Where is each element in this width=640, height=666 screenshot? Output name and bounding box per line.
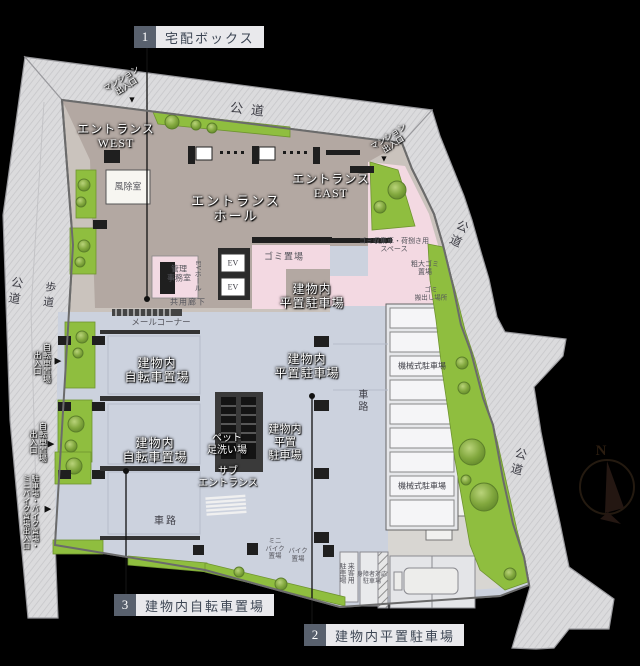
callout-delivery-box: 1 宅配ボックス bbox=[134, 26, 264, 48]
site-plan: 1 宅配ボックス 3 建物内自転車置場 2 建物内平置駐車場 マンション 出入口… bbox=[0, 0, 640, 666]
callout-bicycle-parking: 3 建物内自転車置場 bbox=[114, 594, 274, 616]
callout-3-number: 3 bbox=[114, 594, 136, 616]
callout-2-number: 2 bbox=[304, 624, 326, 646]
callout-flat-parking: 2 建物内平置駐車場 bbox=[304, 624, 464, 646]
compass-icon bbox=[580, 460, 634, 524]
callout-1-number: 1 bbox=[134, 26, 156, 48]
callout-1-label: 宅配ボックス bbox=[156, 26, 264, 48]
callout-2-label: 建物内平置駐車場 bbox=[326, 624, 464, 646]
callout-3-label: 建物内自転車置場 bbox=[136, 594, 274, 616]
floor-plan-drawing bbox=[0, 0, 640, 666]
windbreak-room bbox=[106, 170, 150, 204]
